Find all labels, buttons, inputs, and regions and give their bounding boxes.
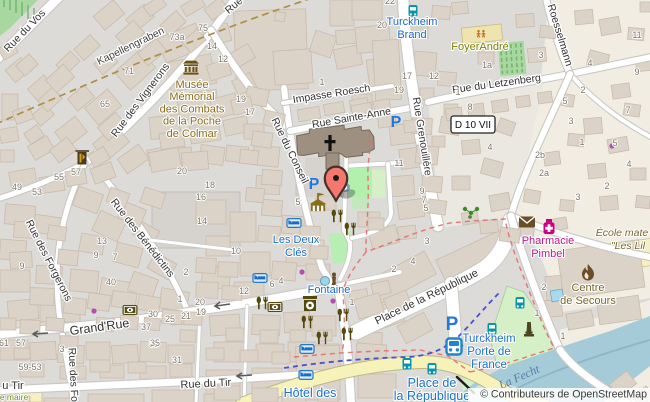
svg-text:Clés: Clés xyxy=(285,247,308,259)
svg-text:"Les Lil: "Les Lil xyxy=(611,240,646,252)
svg-text:Les Deux: Les Deux xyxy=(273,234,320,246)
svg-text:4: 4 xyxy=(278,276,283,286)
svg-text:11: 11 xyxy=(394,158,403,168)
svg-text:3: 3 xyxy=(568,116,573,126)
svg-text:57: 57 xyxy=(16,338,26,348)
svg-text:P: P xyxy=(391,114,402,131)
svg-text:3: 3 xyxy=(575,192,580,202)
svg-text:53: 53 xyxy=(32,187,42,197)
svg-text:u Tir: u Tir xyxy=(2,380,24,392)
svg-text:1: 1 xyxy=(560,331,565,341)
svg-text:18: 18 xyxy=(205,180,215,190)
svg-text:des Combats: des Combats xyxy=(160,103,225,115)
svg-text:37: 37 xyxy=(141,322,151,332)
svg-text:4: 4 xyxy=(410,256,415,266)
svg-text:11: 11 xyxy=(632,30,641,40)
svg-text:5: 5 xyxy=(423,203,428,213)
svg-text:65: 65 xyxy=(100,99,110,109)
svg-text:61: 61 xyxy=(0,338,9,348)
svg-text:de la Poche: de la Poche xyxy=(163,116,221,128)
svg-text:73a: 73a xyxy=(169,32,184,42)
svg-text:1a: 1a xyxy=(482,60,492,70)
svg-text:2: 2 xyxy=(391,264,396,274)
svg-text:5: 5 xyxy=(612,138,617,148)
svg-text:e maire: e maire xyxy=(0,392,28,402)
svg-text:9: 9 xyxy=(93,250,98,260)
svg-text:12: 12 xyxy=(239,286,249,296)
svg-text:4: 4 xyxy=(626,159,631,169)
svg-text:25: 25 xyxy=(165,314,175,324)
svg-text:Mémorial: Mémorial xyxy=(169,91,214,103)
svg-text:4: 4 xyxy=(487,142,492,152)
svg-text:9: 9 xyxy=(634,67,639,77)
svg-text:P: P xyxy=(446,314,459,335)
svg-text:2: 2 xyxy=(183,267,188,277)
svg-text:4: 4 xyxy=(587,58,592,68)
svg-text:France: France xyxy=(471,359,507,371)
svg-text:Turckheim: Turckheim xyxy=(462,333,515,345)
svg-text:13: 13 xyxy=(97,236,107,246)
svg-text:la République: la République xyxy=(394,389,470,402)
svg-text:1: 1 xyxy=(349,297,354,307)
svg-text:30: 30 xyxy=(148,309,158,319)
svg-text:Centre: Centre xyxy=(571,282,604,294)
svg-text:Brand: Brand xyxy=(397,29,426,41)
svg-text:1: 1 xyxy=(177,294,182,304)
svg-text:Hôtel des: Hôtel des xyxy=(284,386,337,400)
svg-text:31: 31 xyxy=(172,355,182,365)
svg-text:21: 21 xyxy=(181,311,191,321)
svg-text:71: 71 xyxy=(124,66,134,76)
svg-text:Pharmacie: Pharmacie xyxy=(522,235,575,247)
svg-text:17: 17 xyxy=(245,107,255,117)
svg-text:5: 5 xyxy=(562,96,567,106)
svg-text:2b: 2b xyxy=(535,150,545,160)
svg-text:7: 7 xyxy=(625,105,630,115)
svg-text:Fontaine: Fontaine xyxy=(308,284,351,296)
svg-text:6: 6 xyxy=(269,279,274,289)
svg-text:12: 12 xyxy=(218,54,228,64)
svg-text:57: 57 xyxy=(71,167,81,177)
svg-text:3: 3 xyxy=(59,344,64,354)
svg-text:Porte de: Porte de xyxy=(467,346,510,358)
svg-text:40: 40 xyxy=(106,277,116,287)
svg-text:D 10 VII: D 10 VII xyxy=(455,120,491,131)
svg-text:2: 2 xyxy=(541,282,546,292)
svg-text:59-53: 59-53 xyxy=(18,362,41,372)
svg-text:2: 2 xyxy=(580,85,585,95)
svg-text:1: 1 xyxy=(534,308,539,318)
svg-text:22: 22 xyxy=(385,0,395,6)
svg-text:1: 1 xyxy=(319,77,324,87)
svg-text:19: 19 xyxy=(394,85,404,95)
svg-text:7: 7 xyxy=(112,252,117,262)
svg-text:20: 20 xyxy=(195,297,205,307)
svg-text:Turckheim: Turckheim xyxy=(387,16,438,28)
svg-text:55: 55 xyxy=(54,172,64,182)
svg-text:1: 1 xyxy=(455,87,460,97)
svg-text:20: 20 xyxy=(377,20,387,30)
svg-text:de Secours: de Secours xyxy=(560,295,616,307)
svg-text:19: 19 xyxy=(236,94,246,104)
svg-text:35: 35 xyxy=(150,338,160,348)
svg-text:14: 14 xyxy=(197,216,207,226)
svg-text:École mate: École mate xyxy=(596,226,649,239)
svg-text:© Contributeurs de OpenStreetM: © Contributeurs de OpenStreetMap xyxy=(480,389,647,401)
svg-text:Place de: Place de xyxy=(408,376,457,390)
svg-text:2: 2 xyxy=(604,181,609,191)
svg-text:de Colmar: de Colmar xyxy=(167,128,218,140)
svg-text:20: 20 xyxy=(177,166,187,176)
svg-text:49: 49 xyxy=(12,182,22,192)
svg-text:2a: 2a xyxy=(539,168,549,178)
svg-text:5: 5 xyxy=(295,197,300,207)
svg-text:19: 19 xyxy=(196,307,206,317)
svg-text:8: 8 xyxy=(467,102,472,112)
svg-text:1: 1 xyxy=(579,137,584,147)
svg-text:FoyerAndré: FoyerAndré xyxy=(451,41,508,53)
svg-text:12: 12 xyxy=(429,71,439,81)
svg-text:16: 16 xyxy=(196,192,206,202)
svg-text:10: 10 xyxy=(231,246,241,256)
svg-text:Musée: Musée xyxy=(175,79,208,91)
svg-text:9: 9 xyxy=(19,261,24,271)
svg-text:3: 3 xyxy=(424,236,429,246)
svg-text:Pimbel: Pimbel xyxy=(531,248,565,260)
svg-text:14: 14 xyxy=(207,41,217,51)
svg-text:75: 75 xyxy=(198,23,208,33)
svg-text:17: 17 xyxy=(402,71,412,81)
svg-text:3: 3 xyxy=(538,50,543,60)
